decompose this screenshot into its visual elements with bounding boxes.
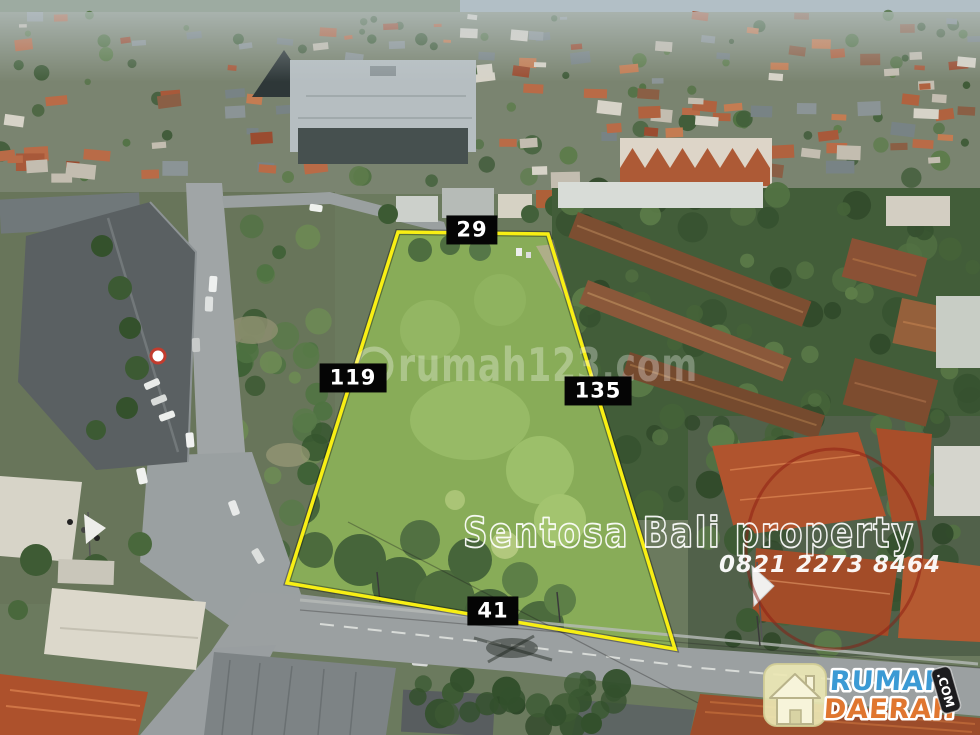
aerial-photo: rumah123.com Sentosa Bali property 0821 … (0, 0, 980, 735)
brand-word-rumah: RUMAH (829, 666, 949, 697)
home-icon (764, 664, 826, 726)
dimension-label-right: 135 (565, 376, 632, 405)
dimension-label-left: 119 (320, 363, 387, 392)
rumah-daerah-logo: RUMAH DAERAH .COM (758, 650, 978, 734)
dimension-label-bottom: 41 (467, 596, 518, 625)
depth-haze (0, 12, 980, 82)
dimension-label-top: 29 (446, 215, 497, 244)
brand-word-daerah: DAERAH (823, 694, 957, 725)
sea-strip (460, 0, 980, 13)
rumah-daerah-logo-canvas: RUMAH DAERAH .COM (758, 650, 978, 734)
